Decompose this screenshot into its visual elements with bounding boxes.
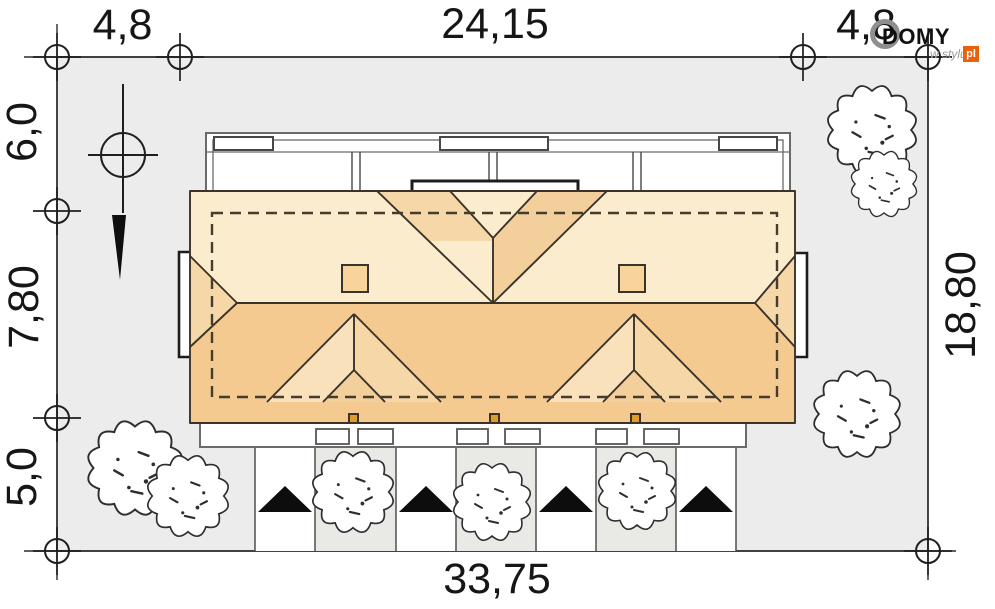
chimney-west	[342, 265, 368, 292]
dim-label-left-upper: 6,0	[0, 52, 45, 212]
dim-label-top-left: 4,8	[85, 2, 160, 48]
dim-label-left-lower: 5,0	[0, 397, 45, 557]
tree-icon	[454, 464, 531, 541]
house-roof	[190, 191, 795, 423]
roof-south-slope	[190, 303, 795, 423]
tree-icon	[313, 452, 393, 532]
site-plan-drawing: 4,8 24,15 4,8 6,0 7,80 5,0 18,80 33,75 D…	[0, 0, 995, 609]
north-terrace	[206, 133, 790, 196]
chimney-east	[619, 265, 645, 292]
east-bay	[795, 253, 807, 357]
dim-label-top-center: 24,15	[405, 1, 585, 47]
west-bay	[179, 252, 190, 357]
dim-label-right: 18,80	[938, 195, 984, 415]
domy-logo: DOMY w stylu pl	[862, 14, 987, 66]
logo-tld-badge: pl	[963, 46, 979, 62]
site-plan-svg	[0, 0, 995, 609]
tree-icon	[599, 453, 676, 530]
logo-tagline: w stylu	[930, 47, 967, 61]
tree-icon	[851, 151, 916, 216]
dim-label-bottom: 33,75	[417, 556, 577, 602]
tree-icon	[814, 371, 900, 457]
dim-label-left-middle: 7,80	[1, 217, 47, 397]
tree-icon	[148, 456, 228, 536]
